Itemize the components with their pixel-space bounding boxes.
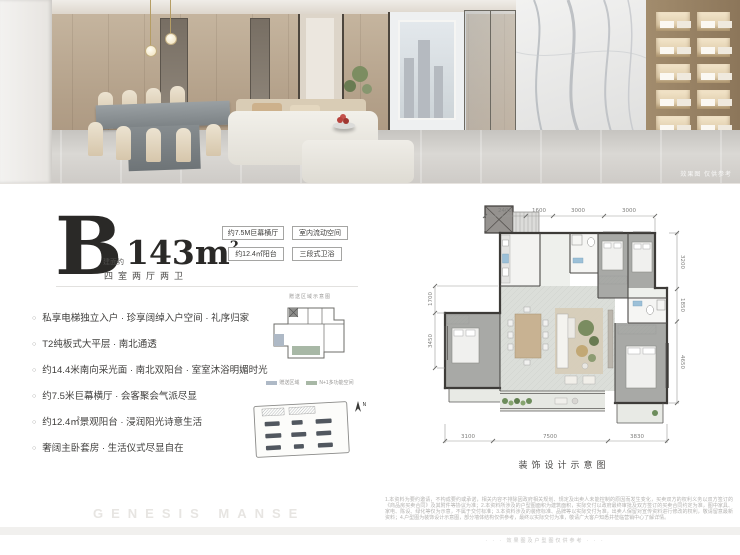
svg-text:3000: 3000 (571, 208, 585, 214)
brand-watermark: GENESIS MANSE (93, 506, 305, 521)
svg-text:7500: 7500 (543, 434, 557, 440)
photo-divider (0, 183, 740, 184)
keyplan-drawing (262, 302, 358, 372)
hero-rendering-photo: 效果图 仅供参考 (0, 0, 740, 183)
bullet-icon: ○ (32, 391, 36, 403)
feature-item: ○约12.4㎡景观阳台 · 浸润阳光诗意生活 (32, 417, 264, 429)
floorplan: 2400 1600 3000 3000 3200 1850 4650 1700 … (405, 198, 723, 452)
footer-band (0, 527, 740, 535)
siteplan-inset: N (250, 397, 368, 466)
dining-chair (116, 126, 131, 160)
svg-text:3450: 3450 (428, 334, 434, 348)
svg-text:3100: 3100 (461, 434, 475, 440)
badge-balcony: 约12.4㎡阳台 (228, 247, 284, 261)
sofa-chaise (302, 140, 414, 183)
svg-text:3200: 3200 (679, 255, 685, 269)
section-divider (56, 286, 358, 287)
badge-living-span: 约7.5M巨幕横厅 (222, 226, 284, 240)
pendant-bulb (165, 33, 177, 45)
svg-text:1850: 1850 (679, 298, 685, 312)
keyplan-title: 赠送区域示意图 (258, 293, 362, 300)
left-white-wall (0, 0, 52, 183)
svg-text:2400: 2400 (498, 208, 512, 214)
glass-partition (464, 10, 516, 138)
legend-item: N+1多功能空间 (306, 379, 353, 386)
keyplan-inset: 赠送区域示意图 赠送区域 N+1多功能空间 (258, 293, 362, 386)
hallway (540, 233, 570, 286)
stairs (513, 212, 539, 233)
west-balcony (449, 388, 500, 402)
legend-item: 赠送区域 (266, 379, 299, 386)
unit-area: 建面约143m2 (103, 233, 239, 272)
highlight-multifunction-area (292, 346, 320, 355)
svg-text:1700: 1700 (428, 292, 434, 306)
pendant-light (170, 0, 171, 34)
feature-item: ○私享电梯独立入户 · 珍享阔绰入户空间 · 礼序归家 (32, 313, 264, 325)
svg-text:3830: 3830 (630, 434, 644, 440)
site-boundary (254, 402, 350, 458)
plant (344, 80, 356, 92)
unit-layout: 四室两厅两卫 (104, 269, 188, 282)
bullet-icon: ○ (32, 339, 36, 351)
svg-text:1600: 1600 (532, 208, 546, 214)
bullet-icon: ○ (32, 443, 36, 455)
north-arrow-icon (355, 401, 361, 412)
keyplan-legend: 赠送区域 N+1多功能空间 (258, 379, 362, 386)
window-city-view (398, 20, 456, 120)
legend-swatch-blue (266, 381, 277, 385)
fruit (337, 117, 343, 123)
kitchen-sink (503, 254, 509, 263)
svg-text:3000: 3000 (622, 208, 636, 214)
bullet-icon: ○ (32, 313, 36, 325)
area-value: 143m (126, 233, 230, 272)
floorplan-caption: 装饰设计示意图 (405, 458, 723, 471)
legend-swatch-green (306, 381, 317, 385)
feature-item: ○奢阔主卧套房 · 生活仪式尽显自在 (32, 443, 264, 455)
coffee-table-bowl (333, 122, 355, 129)
highlight-gifted-area (274, 334, 284, 346)
north-label: N (363, 402, 367, 408)
feature-item: ○约7.5米巨幕横厅 · 会客聚会气派尽显 (32, 391, 264, 403)
badge-flow-space: 室内流动空间 (292, 226, 348, 240)
dining-chair (176, 128, 191, 162)
area-prefix: 建面约 (103, 259, 124, 266)
dining-chair (206, 124, 221, 156)
pendant-bulb (145, 45, 157, 57)
plant (362, 84, 372, 94)
dining-chair (88, 122, 103, 156)
flyer-page: 效果图 仅供参考 B 建面约143m2 四室两厅两卫 约7.5M巨幕横厅 室内流… (0, 0, 740, 555)
pendant-light (150, 0, 151, 46)
building-footprints (265, 418, 333, 450)
bullet-icon: ○ (32, 417, 36, 429)
svg-text:4650: 4650 (679, 355, 685, 369)
badge-bathroom: 三段式卫浴 (292, 247, 342, 261)
feature-item: ○约14.4米南向采光面 · 南北双阳台 · 室室沐浴明媚时光 (32, 365, 264, 377)
photo-caption: 效果图 仅供参考 (680, 169, 732, 178)
bullet-icon: ○ (32, 365, 36, 377)
footer-fineprint: · · · 效果图及户型图仅供参考 · · · (370, 537, 720, 544)
plant (352, 66, 368, 82)
marble-feature-wall (516, 0, 646, 140)
dining-chair (146, 128, 161, 162)
legal-disclaimer: 1.本资料为要约邀请，不构成要约或承诺，相关内容不排除因政府相关规划、规定及出卖… (385, 497, 733, 521)
feature-list: ○私享电梯独立入户 · 珍享阔绰入户空间 · 礼序归家 ○T2纯板式大平层 · … (32, 313, 264, 469)
feature-item: ○T2纯板式大平层 · 南北通透 (32, 339, 264, 351)
